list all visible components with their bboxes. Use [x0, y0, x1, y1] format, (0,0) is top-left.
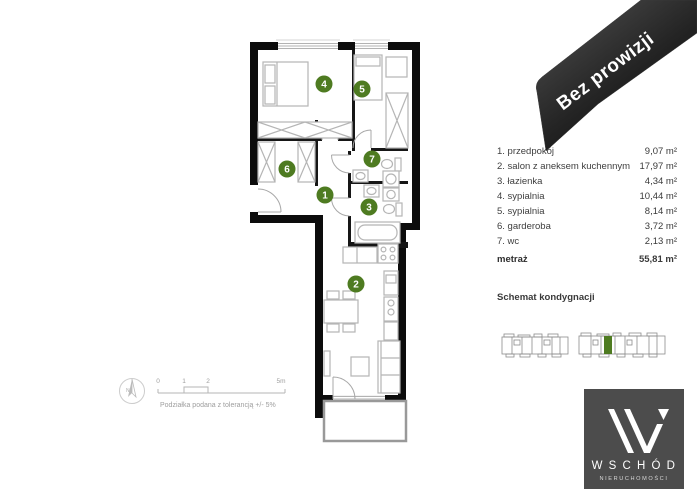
logo-subtitle: NIERUCHOMOŚCI: [600, 474, 669, 482]
legend-value: 2,13 m²: [645, 236, 677, 247]
svg-text:7: 7: [369, 155, 375, 166]
total-area-label: metraż: [497, 254, 528, 265]
logo-name: W S C H Ó D: [592, 459, 677, 472]
compass-label: N: [126, 388, 130, 394]
legend-total-row: metraż 55,81 m²: [497, 252, 677, 267]
logo-w-monogram: [608, 409, 669, 453]
scale-tick-5m: 5m: [276, 378, 285, 385]
legend-value: 10,44 m²: [640, 191, 678, 202]
legend-label: 2. salon z aneksem kuchennym: [497, 161, 630, 172]
room-marker-7: 7: [364, 151, 381, 168]
room-marker-3: 3: [361, 199, 378, 216]
room-legend: 1. przedpokój 9,07 m² 2. salon z aneksem…: [497, 144, 677, 267]
legend-row: 4. sypialnia 10,44 m²: [497, 189, 677, 204]
svg-text:5: 5: [359, 85, 365, 96]
compass-icon: N: [120, 379, 145, 404]
room-marker-5: 5: [354, 81, 371, 98]
building-schematic-right: [579, 333, 665, 357]
legend-label: 7. wc: [497, 236, 519, 247]
legend-value: 9,07 m²: [645, 146, 677, 157]
legend-row: 3. łazienka 4,34 m²: [497, 174, 677, 189]
floor-schematic-title: Schemat kondygnacji: [497, 292, 595, 303]
total-area-value: 55,81 m²: [639, 254, 677, 265]
svg-text:6: 6: [284, 165, 290, 176]
scale-tick-1: 1: [182, 378, 186, 385]
svg-text:3: 3: [366, 203, 372, 214]
scale-tick-2: 2: [206, 378, 210, 385]
legend-row: 2. salon z aneksem kuchennym 17,97 m²: [497, 159, 677, 174]
legend-value: 17,97 m²: [640, 161, 678, 172]
svg-text:2: 2: [353, 280, 359, 291]
balcony: [324, 401, 406, 441]
legend-row: 7. wc 2,13 m²: [497, 234, 677, 249]
legend-row: 1. przedpokój 9,07 m²: [497, 144, 677, 159]
legend-label: 6. garderoba: [497, 221, 551, 232]
room-marker-4: 4: [316, 76, 333, 93]
room-marker-1: 1: [317, 187, 334, 204]
building-schematic-left: [502, 334, 568, 357]
legend-label: 4. sypialnia: [497, 191, 545, 202]
scale-bar: 0 1 2 5m Podziałka podana z tolerancją +…: [156, 378, 285, 409]
legend-label: 5. sypialnia: [497, 206, 545, 217]
floorplan-page: 1 2 3 4 5 6 7 N 0 1: [0, 0, 697, 500]
furniture: [258, 55, 408, 393]
highlighted-unit: [604, 336, 612, 354]
svg-text:1: 1: [322, 191, 328, 202]
svg-text:4: 4: [321, 80, 327, 91]
room-marker-6: 6: [279, 161, 296, 178]
agency-logo: W S C H Ó D NIERUCHOMOŚCI: [584, 389, 684, 489]
legend-label: 3. łazienka: [497, 176, 542, 187]
room-marker-2: 2: [348, 276, 365, 293]
legend-value: 3,72 m²: [645, 221, 677, 232]
legend-label: 1. przedpokój: [497, 146, 554, 157]
legend-row: 5. sypialnia 8,14 m²: [497, 204, 677, 219]
scale-tick-0: 0: [156, 378, 160, 385]
logo-graphic: W S C H Ó D NIERUCHOMOŚCI: [584, 389, 684, 489]
scale-disclaimer: Podziałka podana z tolerancją +/- 5%: [160, 402, 276, 409]
legend-value: 4,34 m²: [645, 176, 677, 187]
legend-row: 6. garderoba 3,72 m²: [497, 219, 677, 234]
legend-value: 8,14 m²: [645, 206, 677, 217]
